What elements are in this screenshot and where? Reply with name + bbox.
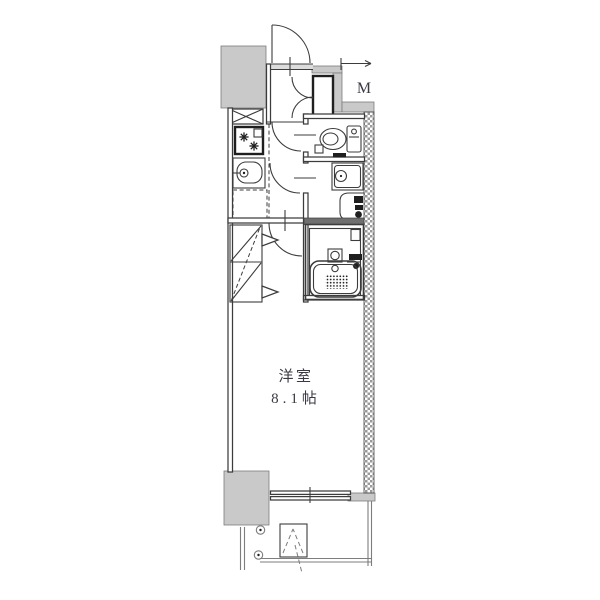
entrance-side-partition — [267, 64, 271, 124]
window-side-wall — [348, 493, 375, 501]
corridor-wall-block — [221, 46, 266, 108]
room-size-label: 8.1帖 — [271, 390, 321, 407]
floor-plan-canvas: M — [0, 0, 600, 600]
bottom-left-wall-block — [224, 471, 269, 525]
bathroom — [304, 218, 364, 300]
kitchen-sink — [233, 158, 265, 188]
washing-machine-pan — [340, 193, 364, 220]
toilet-top-wall — [304, 114, 365, 119]
entrance — [267, 25, 334, 124]
room-top-wall — [228, 218, 307, 223]
pipe-space — [229, 109, 263, 124]
entrance-door-icon — [272, 25, 310, 63]
tub-grip-pattern — [325, 274, 348, 289]
kitchen — [233, 124, 269, 218]
room-name-label: 洋室 — [278, 368, 313, 385]
evacuation-hatch — [280, 524, 307, 573]
main-room: 洋室 8.1帖 — [271, 368, 321, 407]
meter-side-wall — [333, 73, 342, 112]
entrance-top-wall — [312, 66, 342, 73]
gas-stove — [235, 127, 263, 154]
toilet-washroom-wall — [304, 157, 365, 162]
toilet-icon — [320, 126, 361, 152]
washroom-bath-divider — [304, 218, 364, 225]
shoe-cabinet — [313, 76, 333, 117]
toilet-paper-holder — [315, 145, 323, 153]
washroom — [332, 163, 364, 220]
shoe-cabinet-doors-icon — [292, 77, 313, 118]
meter-box-label: M — [357, 80, 371, 97]
folding-door-arrow-icon — [262, 234, 278, 246]
door-threshold — [333, 153, 346, 158]
washbasin-icon — [332, 163, 363, 190]
tap-icon — [243, 172, 245, 174]
shower-unit — [351, 230, 360, 241]
toilet-room — [315, 126, 361, 158]
exterior-insulated-wall — [364, 112, 374, 493]
floor-plan: M — [0, 0, 600, 600]
meter-box: M — [341, 58, 371, 97]
meter-bottom-wall — [342, 102, 374, 112]
closet — [230, 225, 278, 302]
bath-drain-icon — [328, 249, 342, 262]
sliding-window — [271, 487, 351, 503]
toilet-door-icon — [272, 122, 301, 151]
kitchen-counter — [233, 190, 267, 218]
folding-door-arrow-icon — [262, 286, 278, 298]
washer-tap-icon — [354, 196, 363, 203]
